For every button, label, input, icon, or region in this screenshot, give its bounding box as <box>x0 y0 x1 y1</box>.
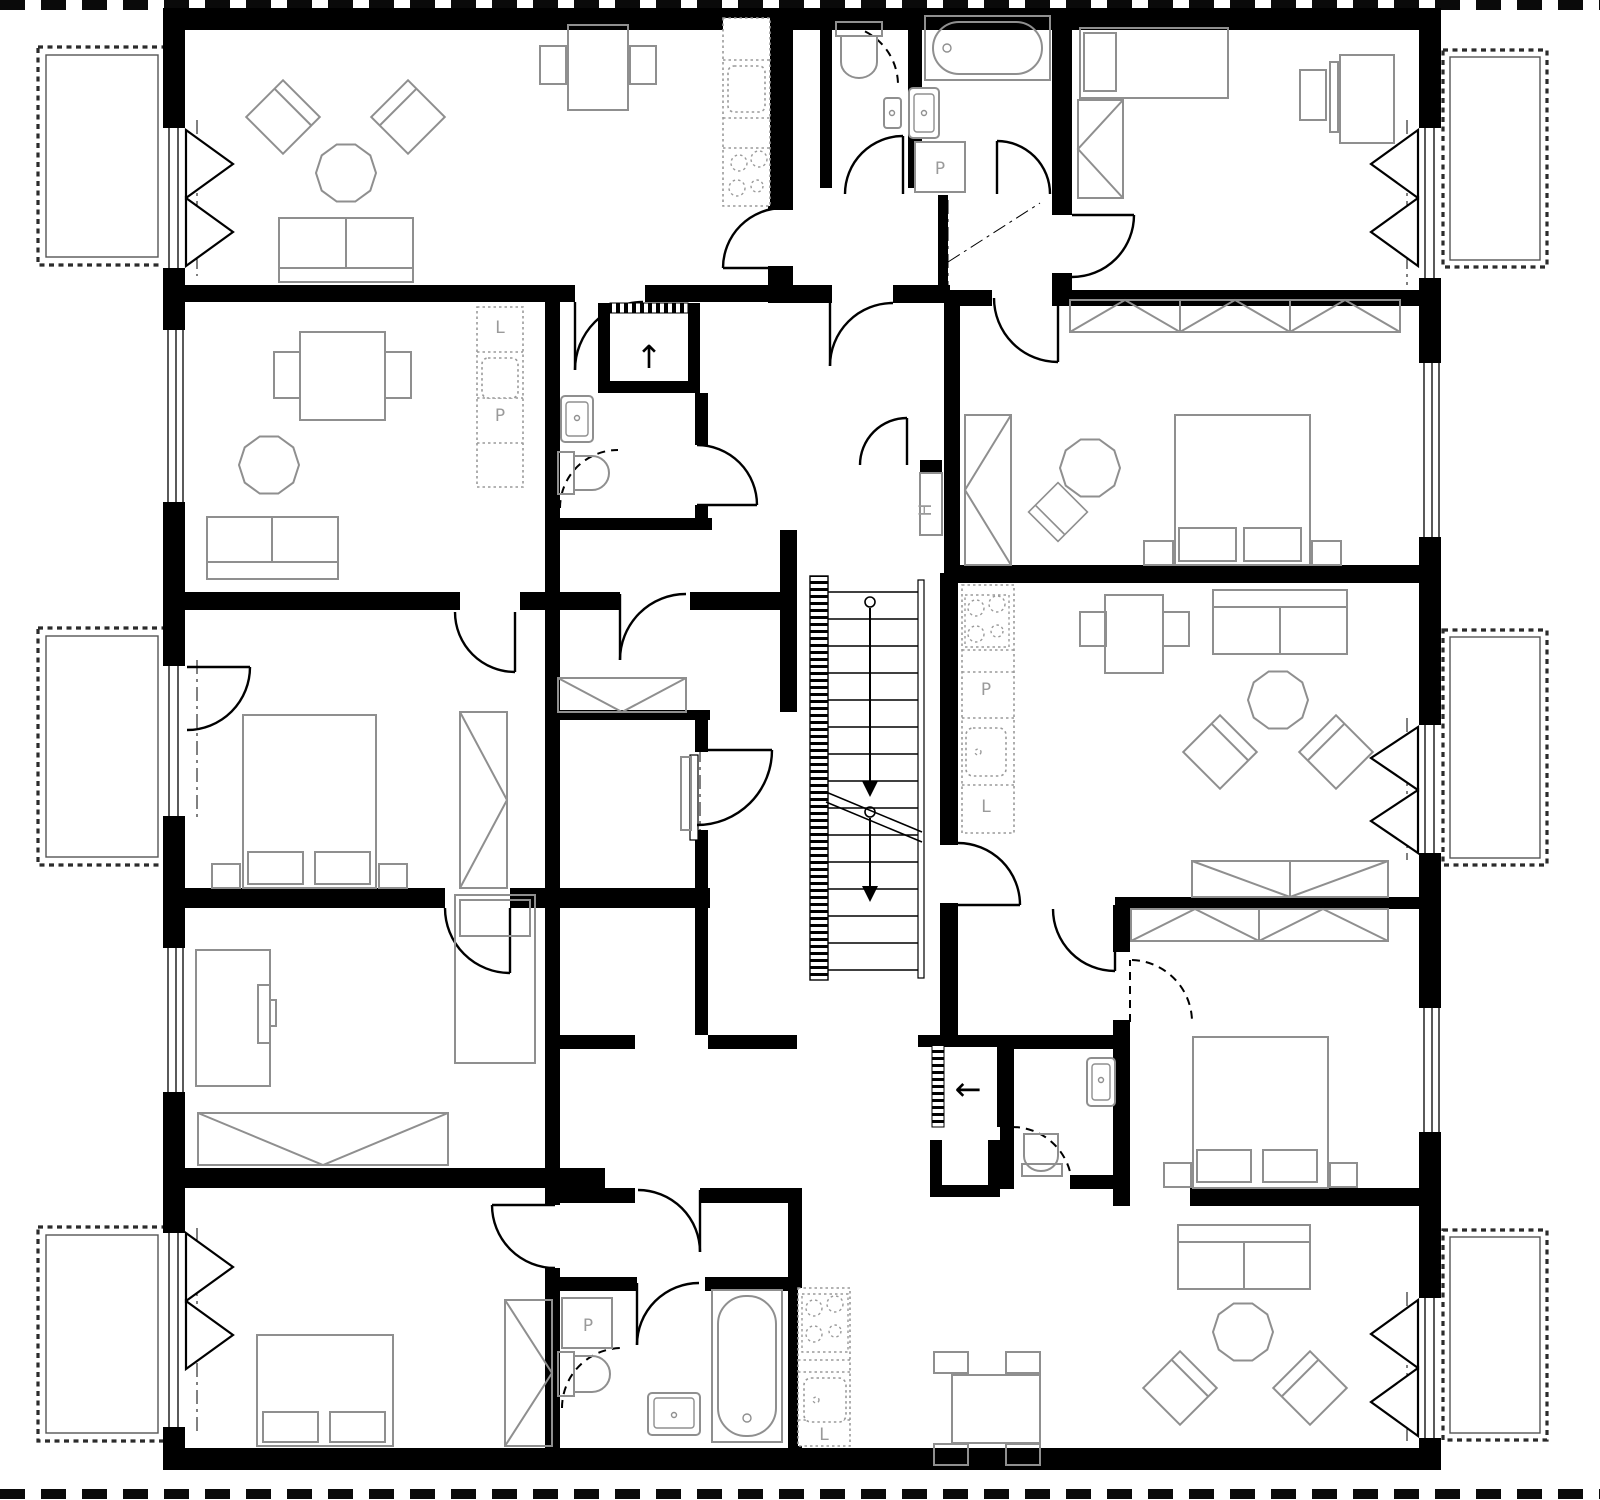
door-bath-a <box>697 445 757 505</box>
sink-wc-top <box>884 98 901 128</box>
balcony-mid-left <box>38 628 165 865</box>
wc-top <box>836 22 901 128</box>
window-bedroom-bottom-right <box>1419 1008 1441 1132</box>
appliance-l-left-label: L <box>495 318 505 338</box>
wc-f <box>1022 1058 1115 1176</box>
toilet-wc-f <box>1022 1134 1062 1176</box>
french-door-top-left <box>163 120 233 276</box>
sink-bathroom-top <box>909 88 939 138</box>
kitchen-top <box>723 18 770 206</box>
door-entry-right-apartment <box>958 843 1020 905</box>
balcony-bottom-left <box>38 1227 165 1441</box>
french-door-bottom-right <box>1371 1292 1441 1443</box>
appliance-l-bottom-label: L <box>819 1425 829 1445</box>
desk-office <box>196 950 276 1086</box>
door-bedroom-tr <box>1072 215 1134 277</box>
chair <box>1029 483 1088 542</box>
exit-left-arrow-icon: ← <box>955 1070 982 1108</box>
sink-kitchen-top <box>728 66 765 112</box>
living-room-mid-right <box>1080 590 1388 897</box>
wardrobe-tr <box>1078 100 1123 198</box>
wardrobe-mid-left <box>460 712 507 888</box>
door-second-room-to-bedroom-ml <box>455 612 515 672</box>
door-bathroom-top <box>997 141 1050 194</box>
dining-table-mr <box>1080 595 1189 673</box>
staircase-main <box>810 473 942 980</box>
window-second-room <box>163 330 185 502</box>
door-landing-upper-right <box>860 418 907 465</box>
stair-treads <box>828 592 918 970</box>
wardrobe-office <box>198 1113 448 1165</box>
door-hall-to-living-tl <box>723 208 783 268</box>
french-door-mid-left <box>163 660 250 822</box>
washer-bottom-label: P <box>583 1316 593 1336</box>
single-bed-tr <box>1080 28 1228 98</box>
dining-table-second-room <box>274 332 411 420</box>
double-bed <box>243 715 376 888</box>
balcony-mid-right <box>1443 630 1547 865</box>
desk-tr <box>1300 55 1394 143</box>
door-landing-top <box>830 303 893 366</box>
toilet-bath-a <box>558 452 609 494</box>
door-wc-f-dashed <box>1012 1127 1072 1187</box>
sofa-br <box>1178 1225 1310 1289</box>
hall-b-wardrobe <box>558 678 686 712</box>
balcony-bottom-right <box>1443 1230 1547 1440</box>
round-table <box>1060 440 1120 497</box>
sofa-top-left <box>279 218 413 282</box>
kitchen-bottom <box>798 1288 850 1446</box>
french-door-bottom-left <box>163 1228 233 1432</box>
sink-wc-f <box>1087 1058 1115 1106</box>
bedroom-mid-left <box>212 712 507 888</box>
door-hall-to-bedroom-bl <box>492 1205 555 1268</box>
sink-kitchen-left <box>482 358 518 398</box>
stair-down-arrow-icon <box>865 597 875 900</box>
armchair <box>1143 1351 1217 1425</box>
door-room-c <box>697 750 772 825</box>
double-bed-br <box>1164 1037 1357 1188</box>
double-bed <box>257 1335 393 1446</box>
bathroom-top <box>909 16 1050 192</box>
round-table <box>239 437 299 494</box>
single-bed-office <box>455 895 535 1063</box>
second-room-left <box>207 332 411 579</box>
lift-up-arrow-icon: ↑ <box>636 338 663 376</box>
door-wc-top <box>845 136 903 194</box>
wardrobe-mr-living <box>1192 861 1388 897</box>
sofa-second-room <box>207 517 338 579</box>
sink-kitchen-center <box>966 728 1006 776</box>
sink-bathroom-bottom <box>648 1393 700 1435</box>
armchair <box>1273 1351 1347 1425</box>
appliance-l-center-label: L <box>981 797 991 817</box>
window-bedroom-mid-right <box>1419 363 1441 537</box>
sink-kitchen-bottom <box>804 1378 846 1422</box>
bedroom-top-right <box>1078 28 1394 198</box>
wardrobe-left-mr <box>965 415 1011 565</box>
wardrobe-bottom-left <box>505 1300 552 1446</box>
double-bed-mr <box>1144 415 1341 565</box>
door-living-br <box>1053 909 1115 971</box>
door-hall-e-bottom <box>638 1190 700 1252</box>
armchair <box>1299 715 1373 789</box>
door-bath-a-toilet-dashed <box>560 450 618 508</box>
bathtub-bottom <box>712 1290 782 1442</box>
toilet-wc-top <box>836 22 882 78</box>
lift <box>610 303 688 313</box>
window-office <box>163 948 185 1092</box>
armchair <box>1183 715 1257 789</box>
armchair <box>371 80 445 154</box>
door-hall-b <box>620 594 686 660</box>
kitchen-center <box>962 585 1014 833</box>
door-bedroom-br-dashed <box>1130 960 1192 1022</box>
labels: P L P H P L P L ↑ ← <box>495 159 991 1445</box>
washer-top-label: P <box>935 159 945 179</box>
sofa-mr <box>1213 590 1347 654</box>
round-table <box>1213 1304 1273 1361</box>
dining-table-top <box>540 25 656 110</box>
bathroom-bottom <box>558 1290 782 1442</box>
bedroom-bottom-right <box>1131 909 1388 1188</box>
bath-a <box>558 396 609 494</box>
wardrobe-br <box>1131 909 1388 941</box>
shaft-h-label: H <box>916 504 936 517</box>
bedroom-bottom-left <box>257 1300 552 1446</box>
door-bedroom-mr <box>994 298 1058 362</box>
washer-left-label: P <box>495 406 505 426</box>
balcony-top-left <box>38 47 165 265</box>
sink-bath-a <box>561 396 593 442</box>
door-bathroom-bottom <box>637 1283 699 1345</box>
french-door-top-right <box>1371 120 1441 285</box>
french-door-mid-right <box>1371 718 1441 860</box>
washer-center-label: P <box>981 680 991 700</box>
floor-plan: P L P H P L P L ↑ ← <box>0 0 1600 1500</box>
closet-fold-door <box>948 200 1040 285</box>
living-room-top-left <box>246 25 656 282</box>
stair-exit-strip <box>932 1045 944 1127</box>
balcony-top-right <box>1443 50 1547 267</box>
floor-plan-drawing: P L P H P L P L ↑ ← <box>0 0 1600 1500</box>
office-room <box>196 895 535 1165</box>
bedroom-mid-right <box>965 300 1400 565</box>
round-table <box>316 145 376 202</box>
armchair <box>246 80 320 154</box>
round-table <box>1248 672 1308 729</box>
living-room-bottom-right <box>934 1225 1347 1465</box>
